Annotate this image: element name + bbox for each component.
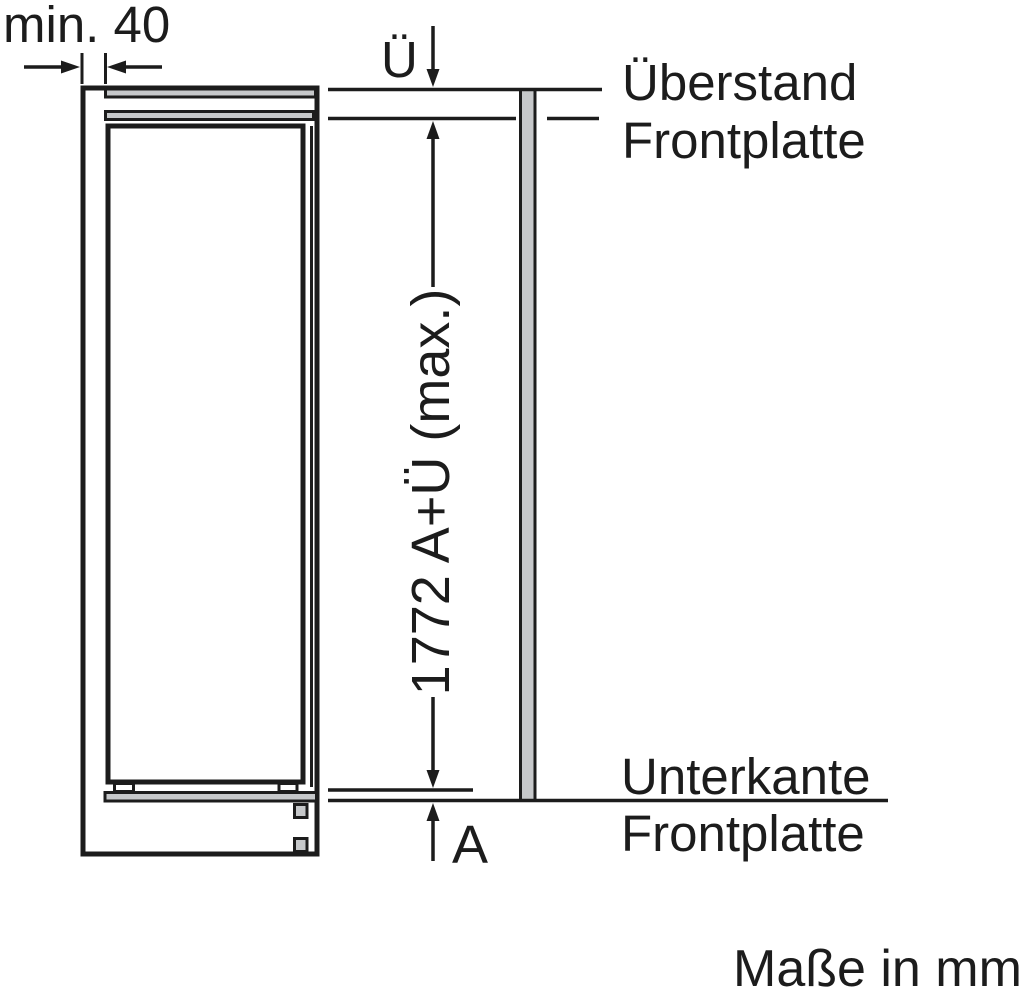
hinge-block-upper	[295, 805, 308, 818]
arrowhead-up-icon	[427, 803, 440, 821]
appliance-base-rail	[105, 793, 317, 802]
hinge-block-lower	[295, 839, 308, 852]
bottom-edge-annotation-line1: Unterkante	[621, 748, 870, 805]
appliance-door-top-rail	[106, 112, 314, 120]
overhang-dim-label: Ü	[381, 31, 418, 88]
overhang-arrow	[427, 26, 440, 87]
overhang-annotation-line1: Überstand	[622, 54, 857, 111]
arrowhead-up-icon	[427, 121, 440, 139]
arrowhead-left-icon	[107, 61, 126, 74]
bottom-dim-label: A	[452, 815, 488, 875]
niche-top-panel	[106, 89, 316, 97]
arrowhead-right-icon	[61, 61, 80, 74]
bottom-offset-arrow	[427, 803, 440, 861]
appliance-body	[108, 126, 303, 782]
arrowhead-down-icon	[427, 770, 440, 788]
overhang-annotation-line2: Frontplatte	[622, 112, 866, 169]
bottom-edge-annotation-line2: Frontplatte	[621, 805, 865, 862]
appliance-foot-right	[279, 784, 297, 792]
min-clearance-label: min. 40	[3, 0, 170, 53]
units-note: Maße in mm	[733, 940, 1022, 991]
diagram-svg: min. 40 Ü Überstand Frontplatte 1772 A+Ü…	[0, 0, 1024, 991]
arrowhead-down-icon	[427, 69, 440, 87]
front-panel	[521, 90, 536, 801]
appliance-foot-left	[115, 784, 134, 792]
height-dim-label: 1772 A+Ü (max.)	[401, 289, 461, 696]
min-clearance-dimension	[24, 53, 162, 84]
installation-diagram: min. 40 Ü Überstand Frontplatte 1772 A+Ü…	[0, 0, 1024, 991]
